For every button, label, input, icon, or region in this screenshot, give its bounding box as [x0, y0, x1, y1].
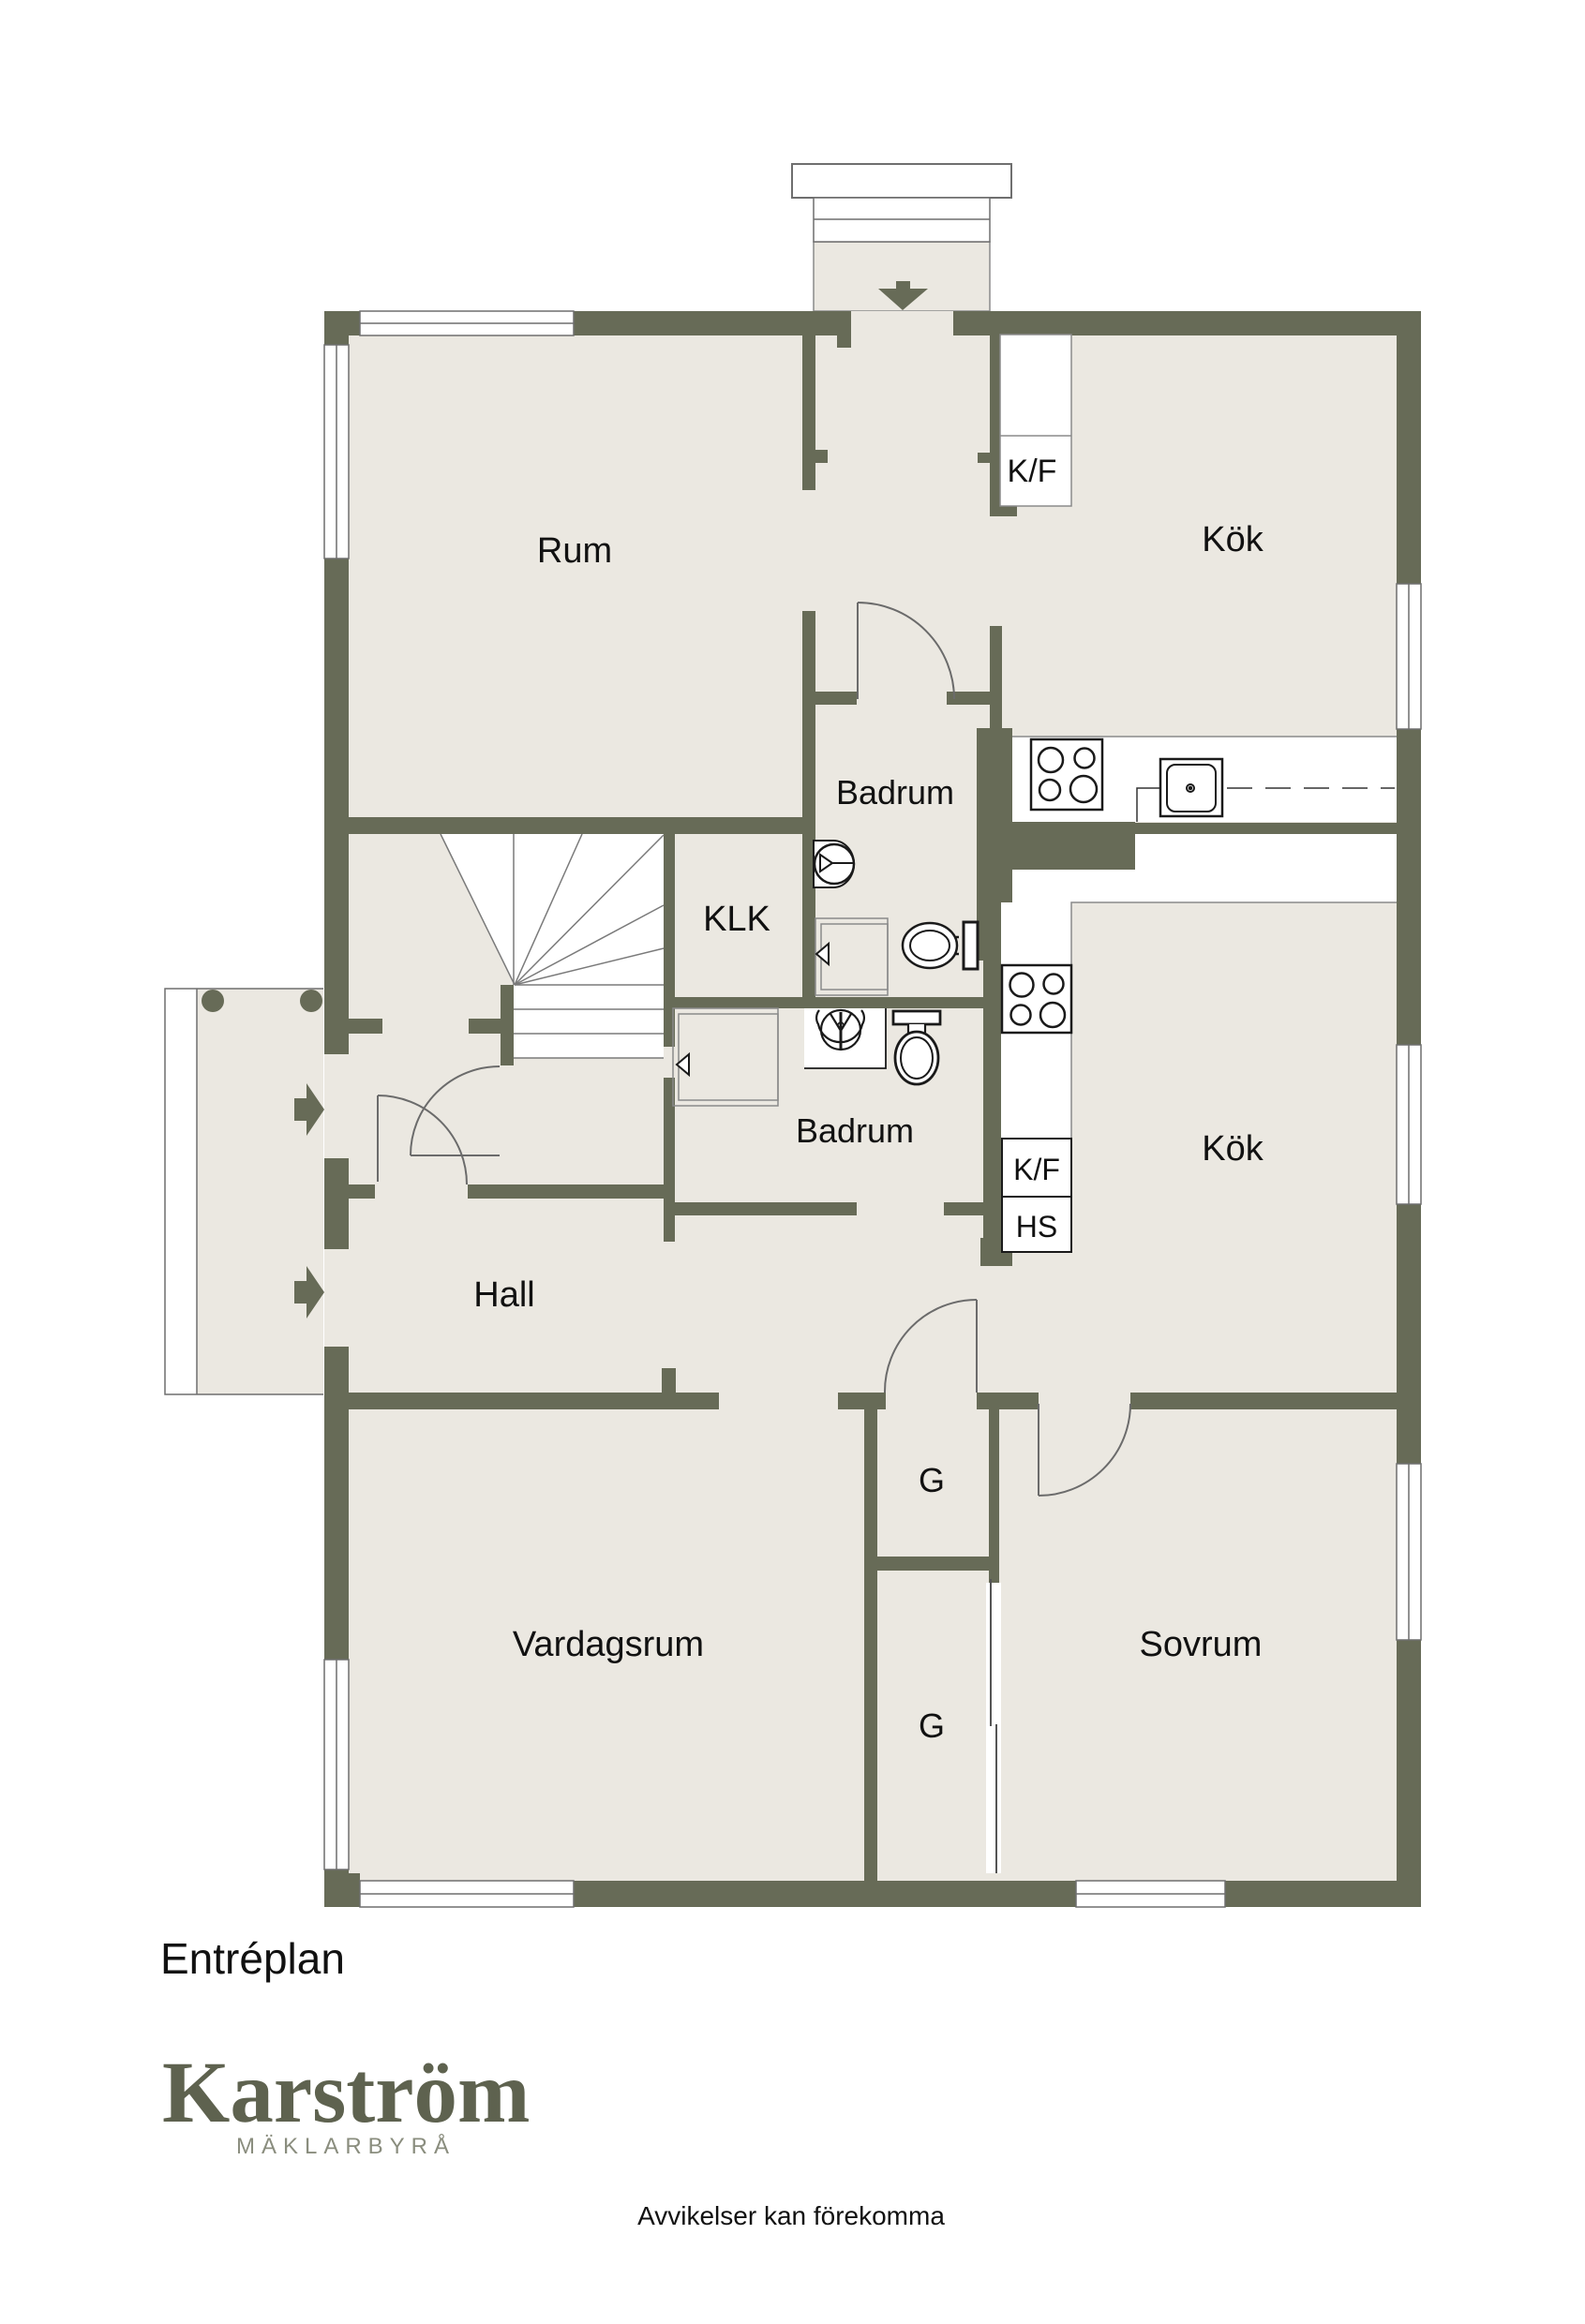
svg-text:Rum: Rum [537, 531, 612, 571]
svg-text:Karström: Karström [162, 2045, 531, 2141]
svg-text:K/F: K/F [1008, 454, 1057, 489]
svg-text:Avvikelser kan förekomma: Avvikelser kan förekomma [637, 2201, 945, 2230]
svg-text:Badrum: Badrum [836, 773, 954, 812]
svg-text:KLK: KLK [703, 900, 770, 939]
svg-text:Kök: Kök [1202, 520, 1264, 559]
svg-text:Kök: Kök [1202, 1129, 1264, 1169]
svg-text:HS: HS [1016, 1210, 1057, 1244]
svg-text:Sovrum: Sovrum [1140, 1625, 1263, 1664]
svg-text:K/F: K/F [1013, 1153, 1060, 1186]
svg-text:G: G [919, 1706, 945, 1745]
svg-text:Badrum: Badrum [796, 1111, 914, 1150]
svg-text:G: G [919, 1461, 945, 1499]
svg-text:MÄKLARBYRÅ: MÄKLARBYRÅ [236, 2133, 456, 2159]
svg-text:Hall: Hall [473, 1275, 534, 1315]
svg-text:Entréplan: Entréplan [160, 1934, 345, 1983]
svg-text:Vardagsrum: Vardagsrum [513, 1625, 704, 1664]
